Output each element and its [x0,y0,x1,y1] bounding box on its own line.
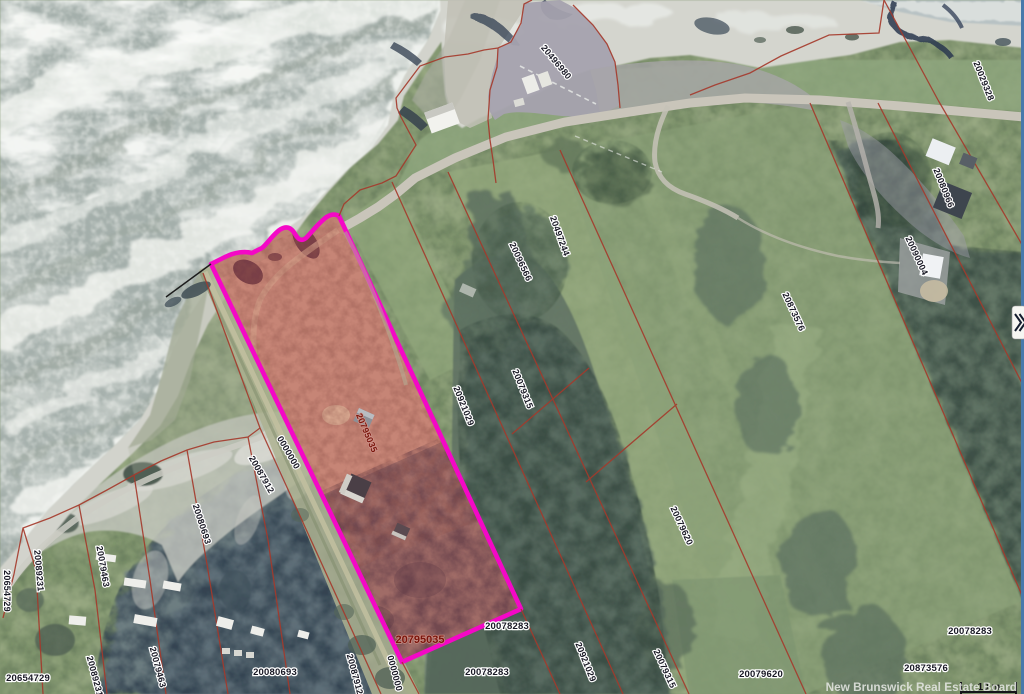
svg-text:20795035: 20795035 [396,634,445,646]
svg-text:New Brunswick Real Estate Boar: New Brunswick Real Estate Board [826,680,1017,694]
svg-text:20079620: 20079620 [739,669,783,680]
svg-text:20873576: 20873576 [904,663,948,674]
svg-text:20078283: 20078283 [948,626,992,637]
svg-text:20654729: 20654729 [2,570,12,612]
svg-text:20078283: 20078283 [485,621,529,632]
svg-text:20654729: 20654729 [6,673,50,684]
svg-text:20078283: 20078283 [465,667,509,678]
svg-text:20080693: 20080693 [253,667,297,678]
